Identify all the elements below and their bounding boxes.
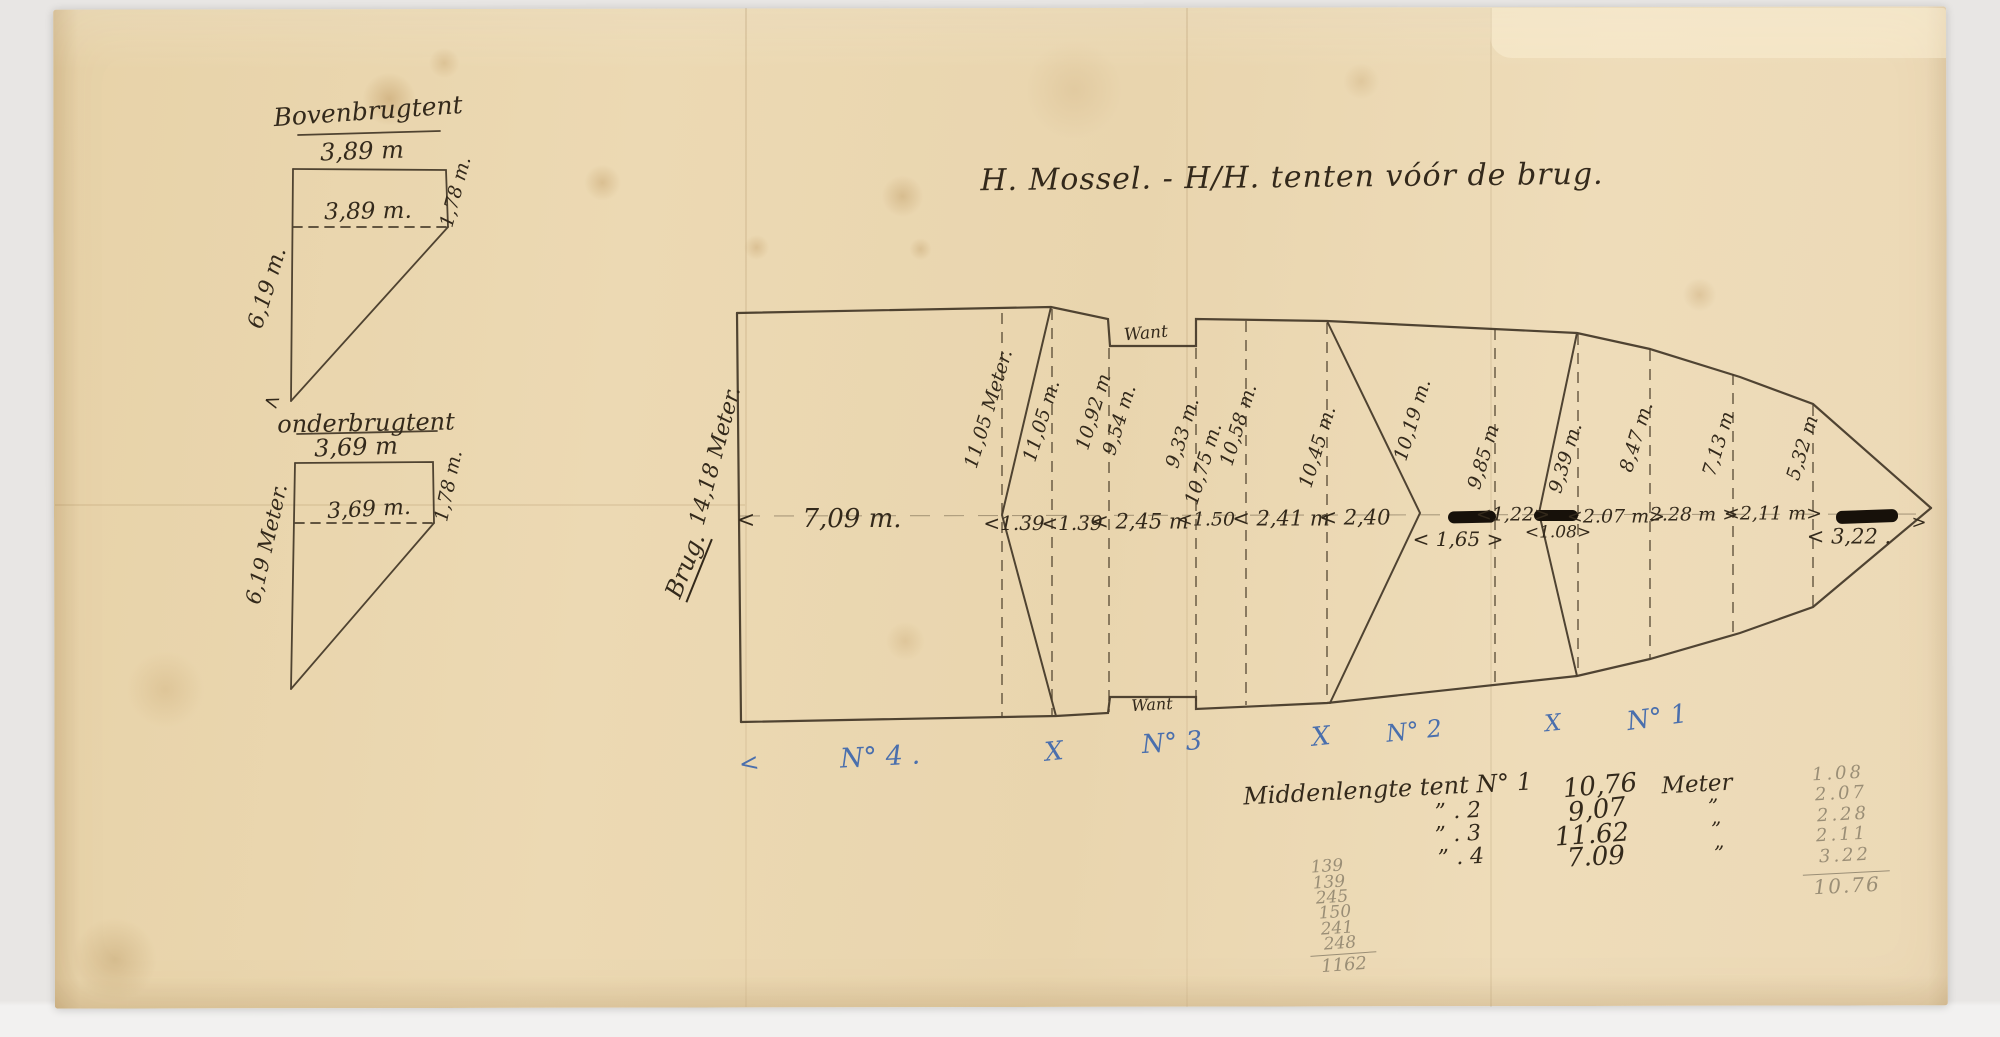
centerline-length-12: <2,11 m> — [1724, 505, 1822, 524]
plan-title: H. Mossel. - H/H. tenten vóór de brug. — [980, 160, 1604, 197]
bow-arrow: > — [1911, 514, 1926, 532]
section-x-2: X — [1310, 723, 1331, 751]
upper-tent-top-width: 3,89 m — [320, 138, 405, 165]
centerline-length-6: < 2,40 — [1319, 508, 1390, 529]
table-row-2-unit: ” — [1711, 819, 1721, 839]
scanned-drawing-scene: H. Mossel. - H/H. tenten vóór de brug. B… — [0, 0, 2000, 1037]
lower-tent-inner-width: 3,69 m. — [327, 497, 412, 523]
upper-tent-left — [291, 169, 293, 401]
table-row-1-unit: ” — [1708, 796, 1718, 816]
upper-tent-diagonal — [291, 227, 448, 401]
pencil-left-5: 248 — [1323, 934, 1357, 953]
centerline-length-1: <1.39 — [983, 513, 1044, 533]
section-label-1: N° 1 — [1625, 701, 1689, 735]
centerline-left-arrow: < — [737, 510, 755, 532]
pencil-right-1: 2.07 — [1815, 784, 1868, 805]
centerline-length-3: < 2,45 m — [1091, 512, 1189, 533]
pencil-right-4: 3.22 — [1819, 846, 1872, 867]
centerline-length-5: < 2,41 m — [1232, 509, 1330, 530]
table-row-0-unit: Meter — [1661, 772, 1733, 799]
pencil-right-total: 10.76 — [1803, 870, 1891, 898]
section-x-3: X — [1544, 712, 1563, 737]
table-row-3-value: 7.09 — [1566, 843, 1625, 872]
lower-tent-left — [291, 463, 295, 689]
upper-tent-inner-width: 3,89 m. — [324, 200, 412, 225]
section-label-3: N° 3 — [1141, 728, 1203, 758]
centerline-length-8: < 1,65 > — [1413, 529, 1504, 549]
section-label-2: N° 2 — [1385, 716, 1443, 746]
section-arrow: < — [737, 750, 760, 777]
table-row-3-label: ” . 4 — [1437, 846, 1484, 870]
pencil-left-total: 1162 — [1310, 951, 1377, 977]
want-label-bottom: Want — [1131, 696, 1173, 714]
centerline-length-0: 7,09 m. — [802, 506, 901, 532]
section-label-4: N° 4 . — [839, 741, 920, 772]
lower-tent-top-width: 3,69 m — [314, 434, 399, 461]
pencil-right-3: 2.11 — [1816, 825, 1869, 846]
centerline-length-4: <1.50 — [1177, 511, 1235, 530]
want-label-top: Want — [1123, 324, 1168, 345]
section-x-1: X — [1043, 738, 1064, 766]
lower-tent-diagonal — [291, 523, 434, 689]
upper-tent-underline — [298, 131, 440, 135]
centerline-length-13: < 3,22 . — [1807, 527, 1891, 548]
table-row-3-unit: ” — [1714, 843, 1724, 863]
